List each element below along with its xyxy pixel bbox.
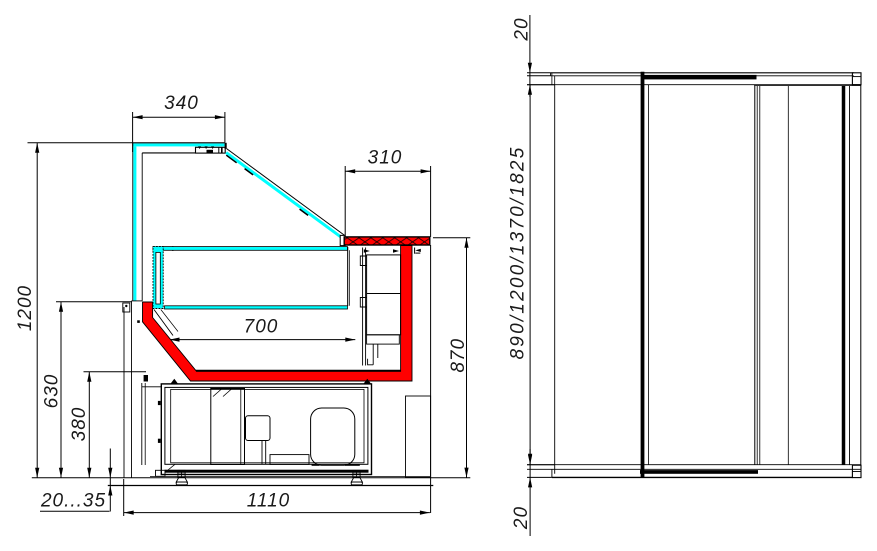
- svg-text:870: 870: [448, 338, 469, 373]
- svg-text:380: 380: [69, 407, 90, 442]
- svg-text:700: 700: [244, 317, 279, 338]
- svg-text:340: 340: [164, 93, 199, 114]
- svg-text:20: 20: [511, 506, 532, 530]
- svg-text:20: 20: [512, 17, 533, 41]
- svg-text:890/1200/1370/1825: 890/1200/1370/1825: [508, 146, 529, 360]
- svg-text:20...35: 20...35: [40, 491, 106, 512]
- svg-text:630: 630: [42, 374, 63, 409]
- svg-text:1200: 1200: [15, 285, 36, 331]
- svg-text:1110: 1110: [247, 491, 290, 512]
- svg-text:310: 310: [368, 148, 403, 169]
